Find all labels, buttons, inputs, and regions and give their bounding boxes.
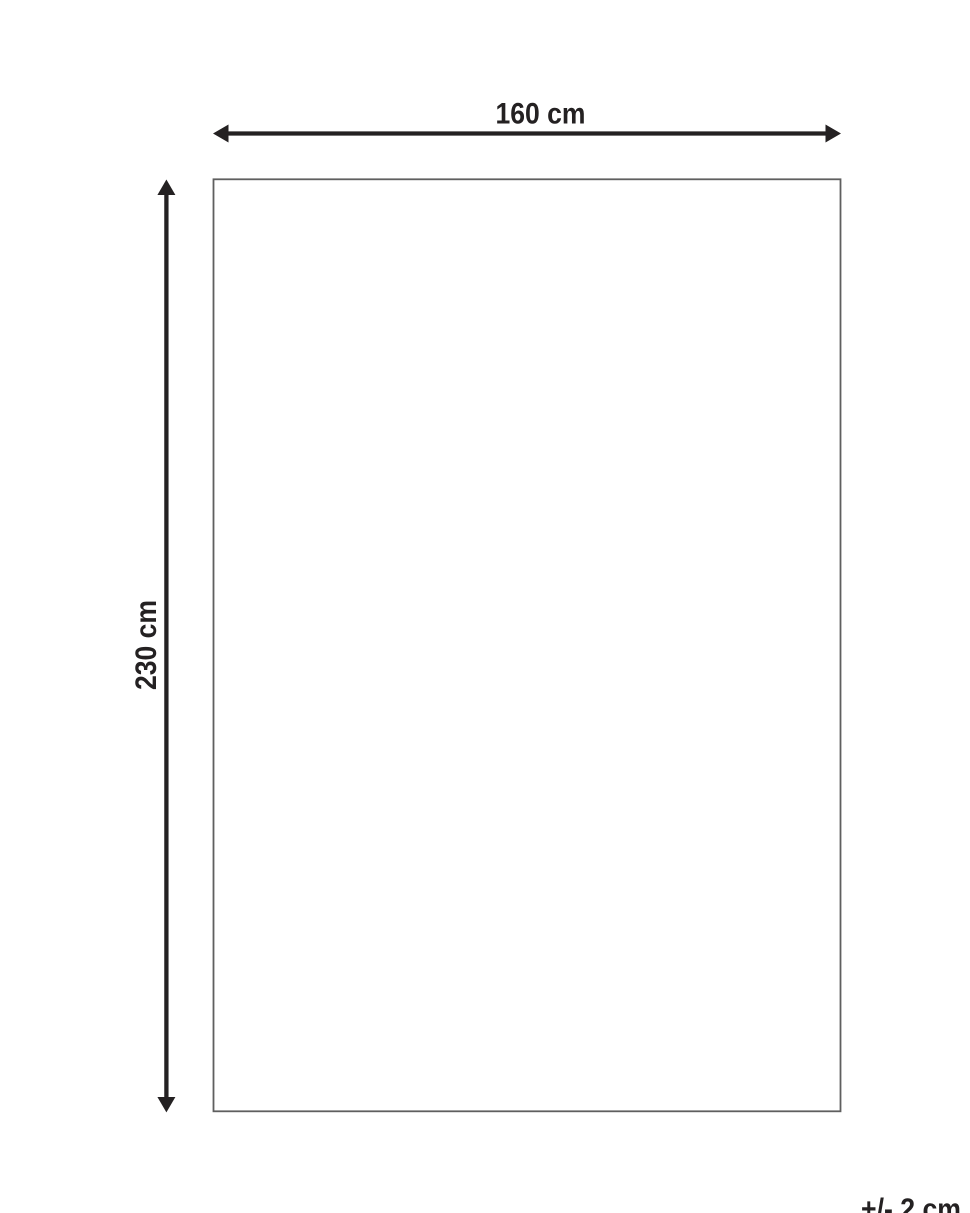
svg-text:160 cm: 160 cm [496,98,586,131]
svg-text:+/- 2 cm: +/- 2 cm [861,1193,961,1213]
svg-text:230 cm: 230 cm [130,600,163,690]
